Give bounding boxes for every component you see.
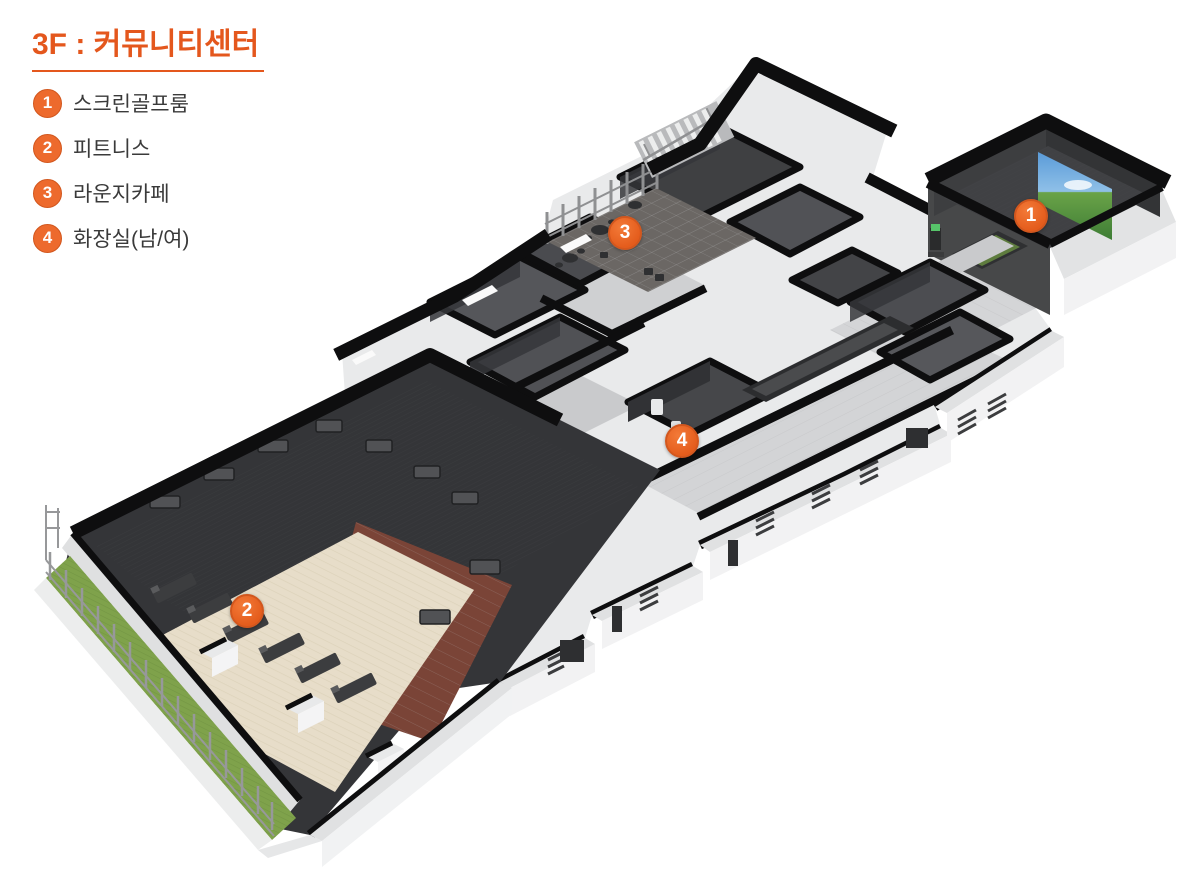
legend-label: 스크린골프룸 <box>73 88 189 118</box>
legend-label: 라운지카페 <box>73 178 170 208</box>
header: 3F : 커뮤니티센터 <box>32 28 264 72</box>
legend-item-restroom: 4 화장실(남/여) <box>33 224 189 252</box>
map-marker-screen-golf: 1 <box>1014 199 1048 233</box>
map-marker-restroom: 4 <box>665 424 699 458</box>
legend-number-badge: 3 <box>33 179 62 208</box>
legend-label: 피트니스 <box>73 133 150 163</box>
legend-item-lounge-cafe: 3 라운지카페 <box>33 179 189 207</box>
legend-number-badge: 1 <box>33 89 62 118</box>
legend-number-badge: 4 <box>33 224 62 253</box>
legend-item-fitness: 2 피트니스 <box>33 134 189 162</box>
title-underline <box>32 70 264 72</box>
legend-item-screen-golf: 1 스크린골프룸 <box>33 89 189 117</box>
map-marker-lounge-cafe: 3 <box>608 216 642 250</box>
toilet-fixture <box>651 399 663 415</box>
legend-number-badge: 2 <box>33 134 62 163</box>
floorplan-page: 3F : 커뮤니티센터 1 스크린골프룸 2 피트니스 3 라운지카페 4 화장… <box>0 0 1200 873</box>
page-title: 3F : 커뮤니티센터 <box>32 28 264 61</box>
legend-label: 화장실(남/여) <box>73 223 189 253</box>
map-marker-fitness: 2 <box>230 594 264 628</box>
legend: 1 스크린골프룸 2 피트니스 3 라운지카페 4 화장실(남/여) <box>33 89 189 269</box>
